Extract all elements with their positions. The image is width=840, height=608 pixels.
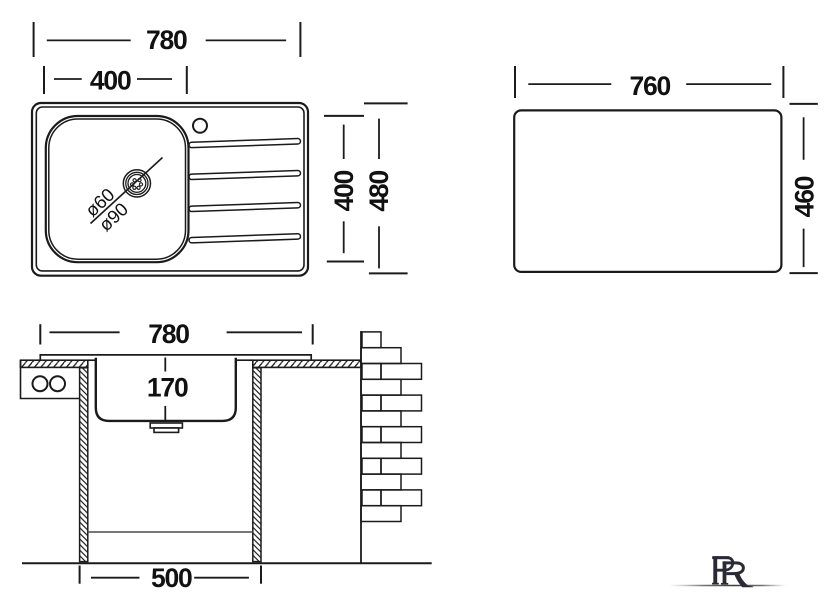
svg-text:780: 780: [148, 319, 189, 349]
svg-text:760: 760: [629, 71, 670, 101]
svg-text:170: 170: [147, 373, 188, 403]
svg-text:400: 400: [329, 170, 359, 211]
svg-text:780: 780: [146, 25, 187, 55]
svg-text:500: 500: [151, 563, 192, 593]
svg-text:460: 460: [789, 176, 819, 217]
svg-text:400: 400: [90, 66, 131, 96]
svg-text:480: 480: [364, 171, 394, 212]
